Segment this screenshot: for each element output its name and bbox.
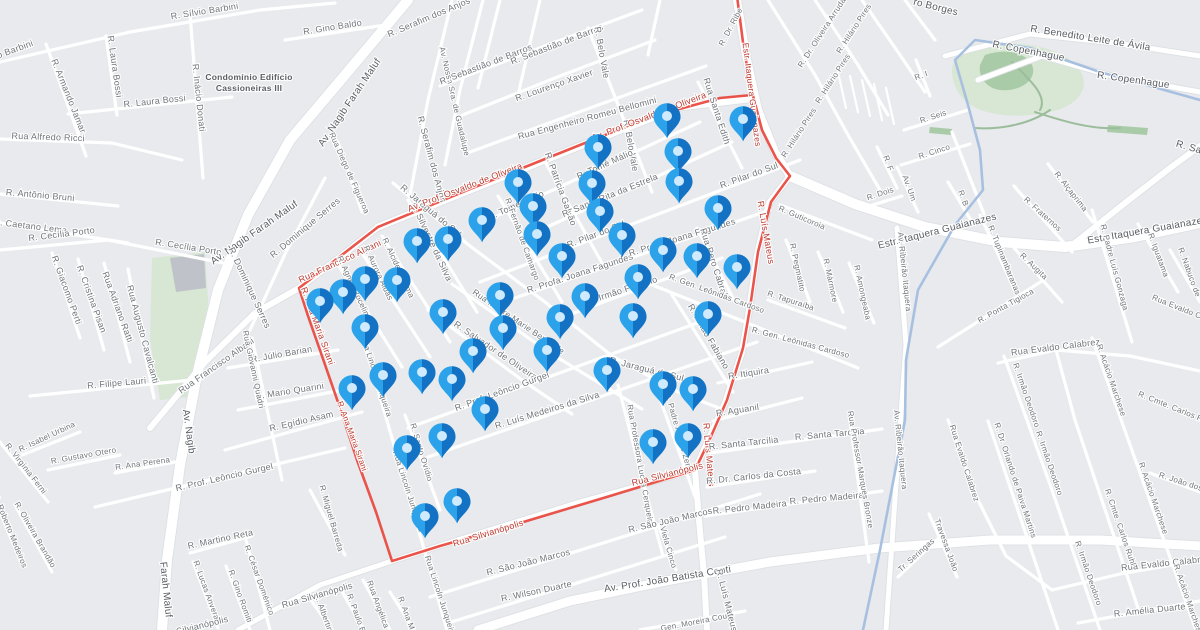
- pin-hole: [587, 178, 597, 188]
- pin-hole: [513, 177, 523, 187]
- pin-hole: [480, 404, 490, 414]
- pin-hole: [532, 229, 542, 239]
- pin-hole: [595, 206, 605, 216]
- pin-hole: [402, 443, 412, 453]
- pin-hole: [692, 251, 702, 261]
- pin-hole: [688, 384, 698, 394]
- pin-hole: [477, 215, 487, 225]
- pin-hole: [674, 176, 684, 186]
- pin-hole: [495, 290, 505, 300]
- pin-hole: [438, 307, 448, 317]
- pin-hole: [378, 370, 388, 380]
- pin-hole: [360, 274, 370, 284]
- pin-hole: [673, 146, 683, 156]
- pin-hole: [732, 262, 742, 272]
- pin-hole: [557, 251, 567, 261]
- pin-hole: [658, 379, 668, 389]
- pin-hole: [443, 234, 453, 244]
- pin-hole: [528, 201, 538, 211]
- pin-hole: [468, 346, 478, 356]
- street-label: Cassioneiras III: [216, 83, 282, 93]
- pin-hole: [360, 322, 370, 332]
- pin-hole: [602, 365, 612, 375]
- map-canvas[interactable]: R. Sílvio Barbinio BarbiniR. Gino BaldoR…: [0, 0, 1200, 630]
- pin-hole: [580, 291, 590, 301]
- street-label: Condomínio Edifício: [205, 72, 292, 82]
- pin-hole: [648, 437, 658, 447]
- pin-hole: [452, 496, 462, 506]
- pin-hole: [662, 111, 672, 121]
- pin-hole: [417, 367, 427, 377]
- pin-hole: [315, 296, 325, 306]
- pin-hole: [683, 431, 693, 441]
- pin-hole: [617, 230, 627, 240]
- pin-hole: [713, 203, 723, 213]
- pin-hole: [738, 114, 748, 124]
- pin-hole: [555, 312, 565, 322]
- map-viewport[interactable]: R. Sílvio Barbinio BarbiniR. Gino BaldoR…: [0, 0, 1200, 630]
- pin-hole: [392, 275, 402, 285]
- pin-hole: [628, 311, 638, 321]
- pin-hole: [498, 323, 508, 333]
- pin-hole: [633, 272, 643, 282]
- pin-hole: [420, 511, 430, 521]
- pin-hole: [593, 142, 603, 152]
- pin-hole: [338, 287, 348, 297]
- pin-hole: [703, 309, 713, 319]
- pin-hole: [347, 383, 357, 393]
- pin-hole: [658, 245, 668, 255]
- pin-hole: [437, 431, 447, 441]
- pin-hole: [542, 345, 552, 355]
- pin-hole: [412, 236, 422, 246]
- pin-hole: [447, 374, 457, 384]
